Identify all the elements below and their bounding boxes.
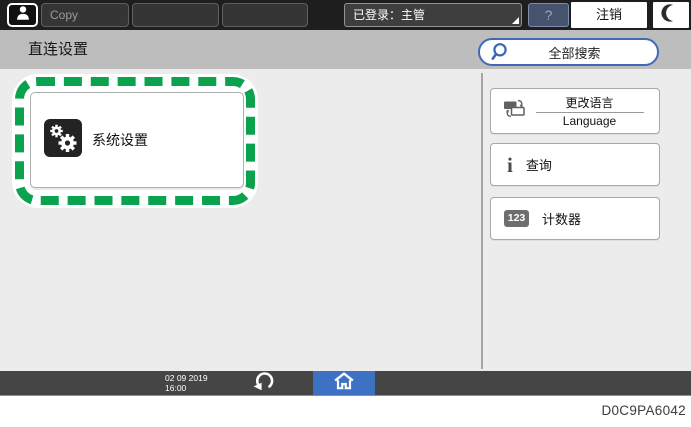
language-label: Language [563,114,616,128]
tab-empty-1[interactable] [132,3,219,27]
label-divider [536,112,644,113]
system-settings-label: 系统设置 [92,130,148,150]
gears-icon [44,119,82,162]
corner-triangle-icon [512,17,519,24]
inquiry-button[interactable]: i 查询 [490,143,660,186]
counter-button[interactable]: 123 计数器 [490,197,660,240]
date-text: 02 09 2019 [165,373,208,383]
device-screen: Copy 已登录：主管 ? 注销 直连设置 [0,0,691,395]
page-title: 直连设置 [28,30,88,69]
content-area: 系统设置 更改语言 Language [0,69,691,371]
home-icon [332,371,356,396]
info-icon: i [507,155,513,175]
change-language-label: 更改语言 [565,94,613,111]
back-button[interactable] [240,371,286,395]
login-status-field[interactable]: 已登录：主管 [344,3,522,27]
energy-saver-button[interactable] [653,2,689,28]
title-bar: 直连设置 全部搜索 [0,30,691,69]
search-all-label: 全部搜索 [512,43,657,62]
datetime: 02 09 2019 16:00 [165,373,208,393]
counter-icon: 123 [504,210,529,227]
logout-button[interactable]: 注销 [571,2,647,28]
top-bar: Copy 已登录：主管 ? 注销 [0,0,691,30]
login-status-text: 已登录：主管 [353,8,425,22]
moon-icon [661,2,681,29]
language-icon [501,98,528,124]
help-button[interactable]: ? [528,3,569,27]
tab-empty-2[interactable] [222,3,308,27]
search-all-button[interactable]: 全部搜索 [478,38,659,66]
time-text: 16:00 [165,383,208,393]
system-settings-button[interactable]: 系统设置 [30,92,244,188]
inquiry-label: 查询 [526,155,552,174]
tab-copy[interactable]: Copy [41,3,129,27]
user-icon [14,4,32,26]
user-button[interactable] [7,3,38,27]
bottom-bar: 02 09 2019 16:00 [0,371,691,396]
search-icon [490,41,512,63]
home-button[interactable] [313,371,375,395]
screenshot: Copy 已登录：主管 ? 注销 直连设置 [0,0,691,427]
language-labels: 更改语言 Language [528,94,651,128]
panel-divider [481,73,483,369]
back-icon [250,370,276,397]
change-language-button[interactable]: 更改语言 Language [490,88,660,134]
counter-label: 计数器 [542,209,581,228]
figure-code: D0C9PA6042 [601,403,686,418]
